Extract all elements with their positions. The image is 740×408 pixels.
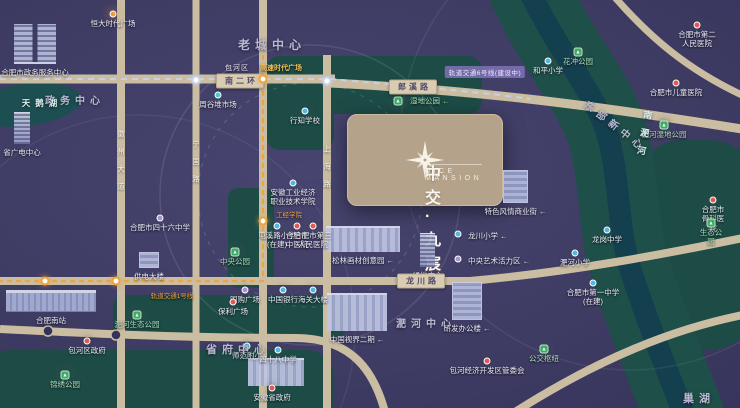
poi-purple-dot	[242, 287, 249, 294]
area-label: 巢湖	[683, 390, 715, 406]
poi-park-icon	[394, 97, 403, 106]
metro-station-icon	[112, 277, 121, 286]
poi-label: 锦绣公园	[50, 380, 80, 389]
poi-blue-dot	[280, 287, 287, 294]
road-label: 龙川路	[397, 274, 445, 289]
poi-orange-dot	[110, 11, 117, 18]
poi-label: 生态公园	[697, 228, 726, 247]
poi-label: 安徽工业经济 职业技术学院	[271, 188, 316, 207]
poi-label: 中国银行	[268, 295, 298, 304]
poi-label: 龙川小学 ←	[468, 231, 508, 240]
poi-label: 合肥市第一中学 (在建)	[567, 288, 620, 307]
poi-blue-dot	[290, 180, 297, 187]
metro-label: 高速时代广场	[260, 63, 302, 73]
poi-label: 龙岗中学	[592, 235, 622, 244]
poi-label: 合肥市第二人民医院	[676, 30, 719, 49]
poi-label: 公交枢纽	[529, 354, 559, 363]
poi-park-icon	[61, 371, 70, 380]
poi-red-dot	[269, 385, 276, 392]
building-hall	[326, 226, 400, 252]
building-label: 特色风情商业街 ←	[484, 206, 546, 217]
building-towers	[14, 24, 56, 64]
metro-station-icon	[259, 217, 268, 226]
poi-red-dot	[673, 80, 680, 87]
building-hall	[327, 293, 387, 331]
poi-purple-dot	[157, 215, 164, 222]
poi-park-icon	[231, 248, 240, 257]
metro-label: 轨道交通6号线(建设中)	[445, 66, 525, 78]
poi-label: 淝河生态公园	[115, 320, 160, 329]
poi-label: 周谷堆市场	[199, 100, 237, 109]
road-label: 上海路	[322, 145, 333, 198]
building-blocks	[503, 170, 528, 203]
poi-label: 花冲公园	[563, 57, 593, 66]
road-label: 包河区	[225, 63, 249, 73]
poi-red-dot	[84, 338, 91, 345]
poi-park-icon	[574, 48, 583, 57]
poi-blue-dot	[545, 58, 552, 65]
road-label: 徽州大道	[116, 130, 127, 200]
metro-station-icon	[323, 77, 332, 86]
poi-label: 合肥市儿童医院	[650, 88, 703, 97]
poi-label: 湿地公园 ←	[410, 96, 450, 105]
area-label: 省府中心	[206, 341, 270, 357]
metro-station-icon	[192, 76, 201, 85]
road-label: 宁国路	[191, 140, 202, 193]
building-stationb	[6, 290, 96, 312]
metro-station-icon	[259, 75, 268, 84]
poi-blue-dot	[275, 347, 282, 354]
building-label: 供电大楼	[134, 271, 164, 282]
poi-blue-dot	[604, 227, 611, 234]
poi-label: 海关大楼	[298, 295, 328, 304]
building-label: 省广电中心	[3, 147, 41, 158]
poi-label: 中央公园	[220, 257, 250, 266]
building-towerb	[14, 112, 30, 144]
poi-red-dot	[710, 197, 717, 204]
poi-blue-dot	[455, 231, 462, 238]
poi-label: 包河区政府	[68, 346, 106, 355]
building-label: 松林画材创意园 ←	[332, 255, 394, 266]
poi-red-dot	[484, 358, 491, 365]
building-blocks	[452, 282, 482, 320]
poi-label: 行知学校	[290, 116, 320, 125]
poi-label: 合肥市第三 人民医院	[294, 231, 332, 250]
building-label: 中国视界二期 ←	[330, 334, 385, 345]
poi-blue-dot	[302, 108, 309, 115]
poi-label: 恒大时代广场	[91, 19, 136, 28]
poi-park-icon	[133, 311, 142, 320]
poi-park-icon	[707, 219, 716, 228]
poi-purple-dot	[455, 256, 462, 263]
building-blocks	[139, 252, 159, 268]
poi-cyan-dot	[215, 92, 222, 99]
area-label: 老城中心	[238, 36, 306, 53]
poi-red-dot	[310, 223, 317, 230]
poi-label: 合肥市四十六中学	[130, 223, 190, 232]
poi-label: 中央艺术活力区 ←	[468, 256, 530, 265]
area-label: 淝河中心	[396, 315, 456, 330]
poi-label: 淝河小学	[560, 258, 590, 267]
building-label: 合肥南站	[36, 315, 66, 326]
project-name-en: NICE MANSION	[425, 164, 482, 182]
poi-label: 和平小学	[533, 66, 563, 75]
map-root: 中交·九宸 NICE MANSION 合肥市政务服务中心省广电中心合肥南站松林画…	[0, 0, 740, 408]
poi-label: 安徽省政府	[253, 393, 291, 402]
road-label: 南二环	[216, 74, 264, 89]
building-towerb	[420, 233, 435, 267]
area-label: 天鹅湖	[22, 97, 63, 109]
project-logo-card: 中交·九宸 NICE MANSION	[347, 114, 503, 206]
poi-park-icon	[540, 345, 549, 354]
poi-label: 包河经济开发区管委会	[450, 366, 525, 375]
metro-label: 轨道交通1号线	[151, 290, 194, 300]
poi-blue-dot	[274, 223, 281, 230]
poi-red-dot	[294, 223, 301, 230]
metro-station-icon	[41, 277, 50, 286]
poi-label: 保利广场	[218, 307, 248, 316]
poi-blue-dot	[590, 280, 597, 287]
poi-blue-dot	[310, 287, 317, 294]
road-label: 郎溪路	[389, 80, 437, 95]
poi-red-dot	[230, 299, 237, 306]
building-label: 合肥市政务服务中心	[1, 67, 69, 78]
poi-blue-dot	[572, 250, 579, 257]
metro-label: 工经学院	[276, 209, 302, 219]
poi-park-icon	[660, 121, 669, 130]
poi-red-dot	[694, 22, 701, 29]
